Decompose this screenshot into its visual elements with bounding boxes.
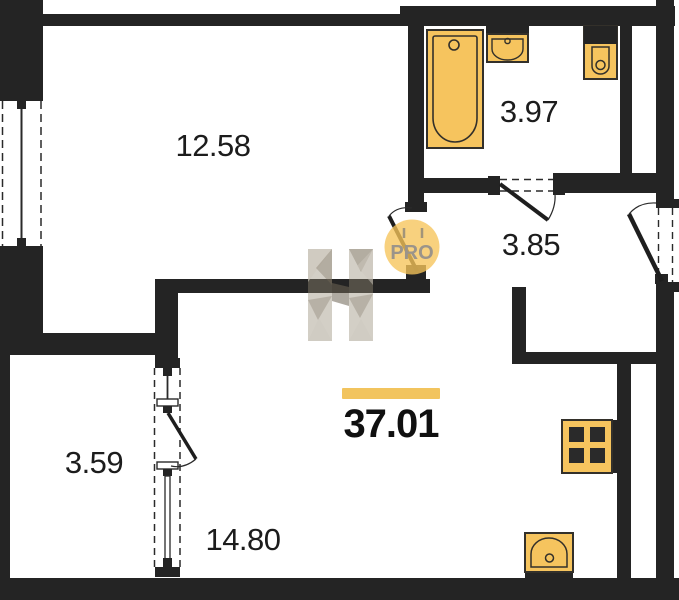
entrance-door (629, 203, 673, 284)
watermark-pro-text: PRO (390, 242, 433, 264)
total-area-label: 37.01 (321, 406, 461, 442)
bathtub-icon (427, 30, 483, 148)
toilet-icon (584, 26, 617, 79)
area-label-bathroom: 3.97 (459, 94, 599, 130)
stove-icon (562, 420, 620, 473)
area-label-living-room: 14.80 (173, 522, 313, 558)
area-label-balcony: 3.59 (24, 445, 164, 481)
kitchen-sink-icon (525, 533, 573, 580)
area-label-room: 12.58 (143, 128, 283, 164)
plan-graphics: PRO (0, 0, 679, 600)
total-area-accent-bar (342, 388, 440, 399)
area-label-hallway: 3.85 (461, 227, 601, 263)
floor-plan: PRO 12.58 3.97 3.85 3.59 14.80 37.01 (0, 0, 679, 600)
bathroom-door (488, 176, 565, 220)
watermark-logo (308, 249, 373, 341)
window-left (0, 93, 43, 254)
washbasin-icon (486, 26, 529, 62)
watermark-pro-badge: PRO (385, 220, 440, 275)
balcony-door (168, 413, 196, 467)
